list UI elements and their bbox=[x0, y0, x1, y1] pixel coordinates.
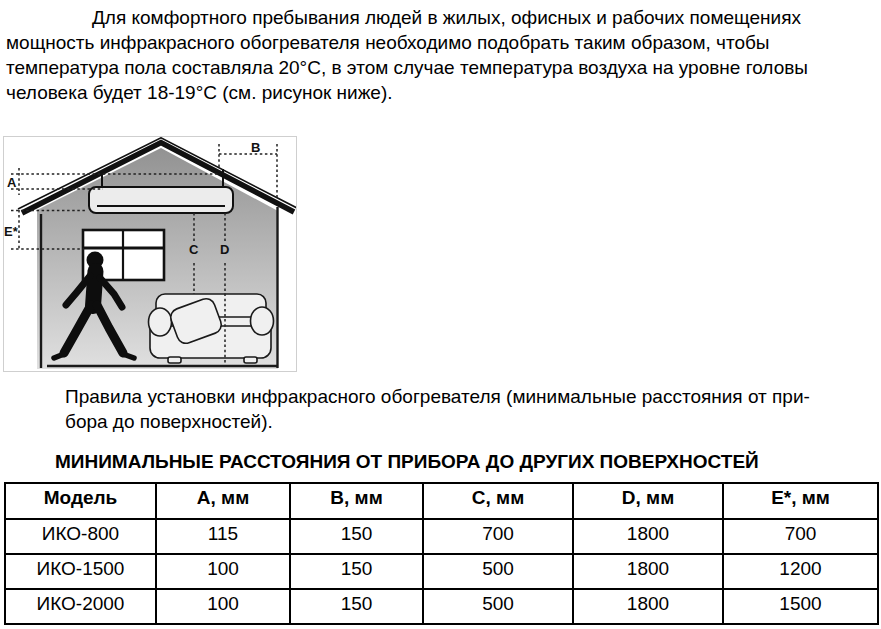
column-header: A, мм bbox=[156, 483, 290, 519]
column-header: E*, мм bbox=[723, 483, 878, 519]
intro-paragraph: Для комфортного пребывания людей в жилых… bbox=[6, 5, 878, 105]
table-cell: 150 bbox=[290, 519, 423, 554]
table-cell: 100 bbox=[156, 554, 290, 589]
table-cell: 115 bbox=[156, 519, 290, 554]
column-header: D, мм bbox=[573, 483, 723, 519]
table-cell: 700 bbox=[423, 519, 573, 554]
table-row: ИКО-800 115 150 700 1800 700 bbox=[5, 519, 878, 554]
paragraph-line: человека будет 18-19°C (см. рисунок ниже… bbox=[6, 80, 878, 105]
table-cell: ИКО-2000 bbox=[5, 589, 156, 624]
table-cell: ИКО-800 bbox=[5, 519, 156, 554]
table-cell: 150 bbox=[290, 589, 423, 624]
header-row: Модель A, мм B, мм C, мм D, мм E*, мм bbox=[5, 483, 878, 519]
table-row: ИКО-1500 100 150 500 1800 1200 bbox=[5, 554, 878, 589]
table-cell: 500 bbox=[423, 589, 573, 624]
table-cell: 1800 bbox=[573, 589, 723, 624]
table-cell: 150 bbox=[290, 554, 423, 589]
table-cell: 700 bbox=[723, 519, 878, 554]
dimension-label-a: A bbox=[7, 175, 17, 190]
table-cell: ИКО-1500 bbox=[5, 554, 156, 589]
table-row: ИКО-2000 100 150 500 1800 1500 bbox=[5, 589, 878, 624]
paragraph-line: мощность инфракрасного обогревателя необ… bbox=[6, 30, 878, 55]
table-cell: 1200 bbox=[723, 554, 878, 589]
document-page: Для комфортного пребывания людей в жилых… bbox=[0, 0, 881, 629]
heater-installation-figure: A E* B C bbox=[3, 136, 297, 372]
table-header: Модель A, мм B, мм C, мм D, мм E*, мм bbox=[5, 483, 878, 519]
paragraph-line: температура пола составляла 20°C, в этом… bbox=[6, 55, 878, 80]
dimension-label-c: C bbox=[189, 242, 199, 257]
table-title: МИНИМАЛЬНЫЕ РАССТОЯНИЯ ОТ ПРИБОРА ДО ДРУ… bbox=[55, 451, 759, 473]
heater-installation-illustration: A E* B C bbox=[4, 137, 296, 371]
table-cell: 100 bbox=[156, 589, 290, 624]
paragraph-line: Для комфортного пребывания людей в жилых… bbox=[6, 5, 878, 30]
dimension-label-e: E* bbox=[4, 224, 19, 239]
table-cell: 1500 bbox=[723, 589, 878, 624]
sofa bbox=[149, 294, 274, 363]
table-body: ИКО-800 115 150 700 1800 700 bbox=[5, 519, 878, 624]
column-header: B, мм bbox=[290, 483, 423, 519]
table-cell: 1800 bbox=[573, 519, 723, 554]
column-header: C, мм bbox=[423, 483, 573, 519]
dimension-label-b: B bbox=[251, 140, 260, 155]
caption-line: бора до поверхностей). bbox=[65, 409, 810, 434]
caption-line: Правила установки инфракрасного обогрева… bbox=[65, 384, 810, 409]
table-cell: 1800 bbox=[573, 554, 723, 589]
table-cell: 500 bbox=[423, 554, 573, 589]
min-distances-table: Модель A, мм B, мм C, мм D, мм E*, мм bbox=[4, 482, 879, 625]
column-header: Модель bbox=[5, 483, 156, 519]
figure-caption: Правила установки инфракрасного обогрева… bbox=[65, 384, 810, 434]
dimension-label-d: D bbox=[220, 242, 229, 257]
